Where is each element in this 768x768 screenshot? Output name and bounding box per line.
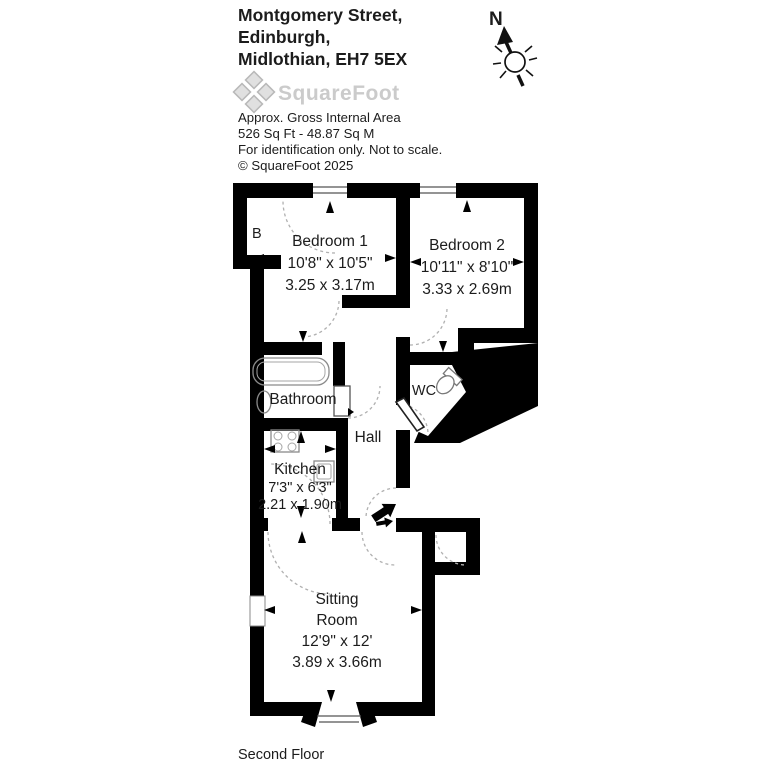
squarefoot-logo-text: SquareFoot xyxy=(278,82,400,105)
info-line-2: 526 Sq Ft - 48.87 Sq M xyxy=(238,126,374,141)
squarefoot-logo: SquareFoot xyxy=(234,72,400,113)
floorplan-page: Montgomery Street, Edinburgh, Midlothian… xyxy=(0,0,768,768)
kitchen-imperial: 7'3" x 6'3" xyxy=(268,480,331,496)
sitting-room-door-arc-2 xyxy=(362,532,395,565)
sitting-room-alcove xyxy=(250,596,265,626)
bedroom1-name: Bedroom 1 xyxy=(292,233,368,250)
bedroom2-metric: 3.33 x 2.69m xyxy=(422,281,512,298)
bedroom1-imperial: 10'8" x 10'5" xyxy=(287,255,372,272)
info-line-1: Approx. Gross Internal Area xyxy=(238,110,401,125)
bedroom2-door-arc xyxy=(410,308,447,345)
landing-door-arc xyxy=(436,535,466,565)
sitting-room-name-2: Room xyxy=(316,612,357,629)
bedroom1-label: Bedroom 1 10'8" x 10'5" 3.25 x 3.17m xyxy=(285,233,375,294)
compass-north-label: N xyxy=(489,9,503,30)
header-address: Montgomery Street, Edinburgh, Midlothian… xyxy=(238,5,408,69)
bedroom2-label: Bedroom 2 10'11" x 8'10" 3.33 x 2.69m xyxy=(421,237,513,298)
floorplan-canvas: Montgomery Street, Edinburgh, Midlothian… xyxy=(0,0,768,768)
bedroom1-door-arc xyxy=(302,301,339,337)
bathroom-door-leaf xyxy=(334,386,354,416)
entry-arrows xyxy=(369,497,400,529)
bedroom2-imperial: 10'11" x 8'10" xyxy=(421,259,513,276)
bedroom1-metric: 3.25 x 3.17m xyxy=(285,277,375,294)
address-line-1: Montgomery Street, xyxy=(238,5,402,25)
stove-icon xyxy=(271,430,299,452)
info-line-4: © SquareFoot 2025 xyxy=(238,158,353,173)
kitchen-metric: 2.21 x 1.90m xyxy=(258,497,342,513)
boiler-cupboard-label: B xyxy=(252,226,262,242)
wc-label: WC xyxy=(412,383,436,399)
north-arrow-icon xyxy=(493,26,537,86)
header-info: Approx. Gross Internal Area 526 Sq Ft - … xyxy=(238,110,442,173)
sitting-room-label: Sitting Room 12'9" x 12' 3.89 x 3.66m xyxy=(292,591,382,671)
sitting-room-name-1: Sitting xyxy=(315,591,358,608)
address-line-2: Edinburgh, xyxy=(238,27,330,47)
info-line-3: For identification only. Not to scale. xyxy=(238,142,442,157)
bathroom-label: Bathroom xyxy=(269,391,336,408)
hall-label: Hall xyxy=(355,429,382,446)
bedroom2-name: Bedroom 2 xyxy=(429,237,505,254)
room-labels: B Bedroom 1 10'8" x 10'5" 3.25 x 3.17m B… xyxy=(252,226,513,671)
bathtub-icon xyxy=(253,358,329,385)
kitchen-name: Kitchen xyxy=(274,461,326,478)
address-line-3: Midlothian, EH7 5EX xyxy=(238,49,408,69)
squarefoot-logo-icon xyxy=(234,72,275,113)
compass: N xyxy=(489,9,537,86)
floor-level-label: Second Floor xyxy=(238,747,324,763)
sitting-room-metric: 3.89 x 3.66m xyxy=(292,654,382,671)
sitting-room-imperial: 12'9" x 12' xyxy=(302,633,373,650)
bathroom-door-arc xyxy=(348,386,380,418)
